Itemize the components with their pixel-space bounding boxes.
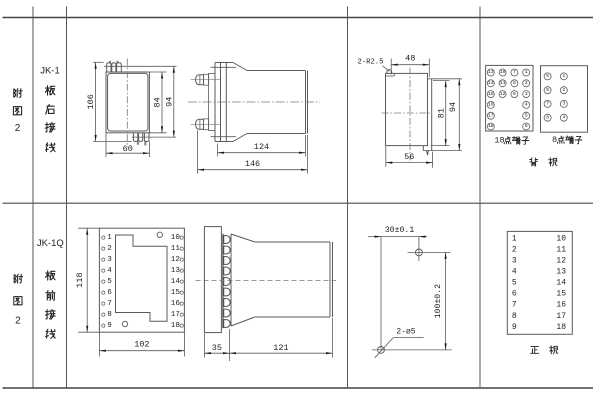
svg-text:17: 17 [171, 311, 180, 319]
svg-text:48: 48 [405, 54, 415, 64]
svg-text:6: 6 [546, 87, 549, 93]
svg-text:17: 17 [556, 312, 566, 321]
svg-text:5: 5 [525, 112, 528, 118]
svg-text:7: 7 [512, 301, 517, 310]
svg-text:13: 13 [556, 268, 566, 277]
svg-text:9: 9 [512, 323, 517, 332]
svg-text:JK-1: JK-1 [40, 66, 60, 77]
svg-text:15: 15 [171, 289, 181, 297]
svg-text:146: 146 [245, 159, 260, 169]
svg-text:8: 8 [552, 135, 557, 145]
svg-text:6: 6 [512, 290, 517, 299]
svg-text:18: 18 [556, 323, 566, 332]
svg-text:1: 1 [107, 234, 112, 242]
svg-text:12: 12 [500, 91, 506, 97]
svg-text:10: 10 [500, 69, 506, 75]
svg-text:60: 60 [123, 144, 133, 154]
svg-text:100±0.2: 100±0.2 [434, 284, 443, 318]
svg-text:3: 3 [562, 101, 565, 107]
svg-text:124: 124 [254, 142, 269, 152]
svg-text:9: 9 [513, 91, 516, 97]
svg-text:17: 17 [488, 112, 494, 118]
svg-text:8: 8 [512, 312, 517, 321]
svg-text:4: 4 [562, 114, 565, 120]
svg-text:2: 2 [107, 245, 112, 253]
svg-text:35: 35 [212, 343, 222, 353]
svg-text:4: 4 [512, 268, 517, 277]
svg-text:12: 12 [171, 256, 181, 264]
svg-text:1: 1 [512, 235, 517, 244]
svg-text:16: 16 [556, 301, 566, 310]
svg-text:JK-1Q: JK-1Q [37, 238, 64, 249]
svg-text:14: 14 [488, 80, 494, 86]
svg-text:15: 15 [488, 91, 494, 97]
svg-text:5: 5 [546, 73, 549, 79]
svg-text:1: 1 [525, 69, 528, 75]
svg-text:16: 16 [171, 300, 181, 308]
svg-text:3: 3 [512, 257, 517, 266]
svg-text:4: 4 [525, 102, 528, 108]
svg-text:14: 14 [171, 278, 181, 286]
svg-text:3: 3 [525, 91, 528, 97]
svg-text:6: 6 [107, 289, 112, 297]
svg-text:14: 14 [556, 279, 566, 288]
svg-text:15: 15 [556, 290, 566, 299]
svg-text:18: 18 [171, 322, 181, 330]
svg-text:81: 81 [436, 108, 446, 118]
svg-text:7: 7 [513, 69, 516, 75]
svg-text:2: 2 [512, 246, 517, 255]
svg-text:8: 8 [546, 114, 549, 120]
svg-text:118: 118 [75, 273, 85, 288]
svg-text:2: 2 [562, 87, 565, 93]
svg-text:8: 8 [513, 80, 516, 86]
svg-text:106: 106 [86, 94, 96, 109]
svg-text:2-ø5: 2-ø5 [396, 328, 415, 337]
svg-text:94: 94 [165, 97, 175, 107]
svg-text:2: 2 [525, 80, 528, 86]
svg-text:11: 11 [500, 80, 506, 86]
svg-text:121: 121 [273, 343, 288, 353]
svg-text:7: 7 [107, 300, 112, 308]
svg-text:18: 18 [488, 123, 494, 129]
svg-text:13: 13 [171, 267, 181, 275]
svg-text:10: 10 [171, 234, 181, 242]
svg-text:102: 102 [134, 340, 149, 350]
svg-text:2: 2 [15, 123, 21, 134]
svg-text:18: 18 [494, 136, 504, 146]
svg-text:9: 9 [107, 322, 112, 330]
svg-text:94: 94 [448, 102, 458, 112]
svg-text:8: 8 [107, 311, 112, 319]
svg-text:5: 5 [107, 278, 112, 286]
svg-text:1: 1 [562, 73, 565, 79]
svg-text:12: 12 [556, 257, 566, 266]
svg-text:10: 10 [556, 235, 566, 244]
svg-text:56: 56 [404, 152, 414, 162]
svg-text:11: 11 [556, 246, 566, 255]
svg-text:6: 6 [525, 123, 528, 129]
svg-text:84: 84 [153, 97, 163, 107]
svg-text:30±0.1: 30±0.1 [385, 226, 415, 235]
svg-text:7: 7 [546, 101, 549, 107]
svg-text:11: 11 [171, 245, 181, 253]
svg-text:2: 2 [15, 315, 21, 326]
svg-text:16: 16 [488, 102, 494, 108]
svg-text:4: 4 [107, 267, 112, 275]
svg-text:13: 13 [488, 69, 494, 75]
svg-text:5: 5 [512, 279, 517, 288]
svg-text:3: 3 [107, 256, 112, 264]
svg-text:2-R2.5: 2-R2.5 [358, 58, 384, 66]
